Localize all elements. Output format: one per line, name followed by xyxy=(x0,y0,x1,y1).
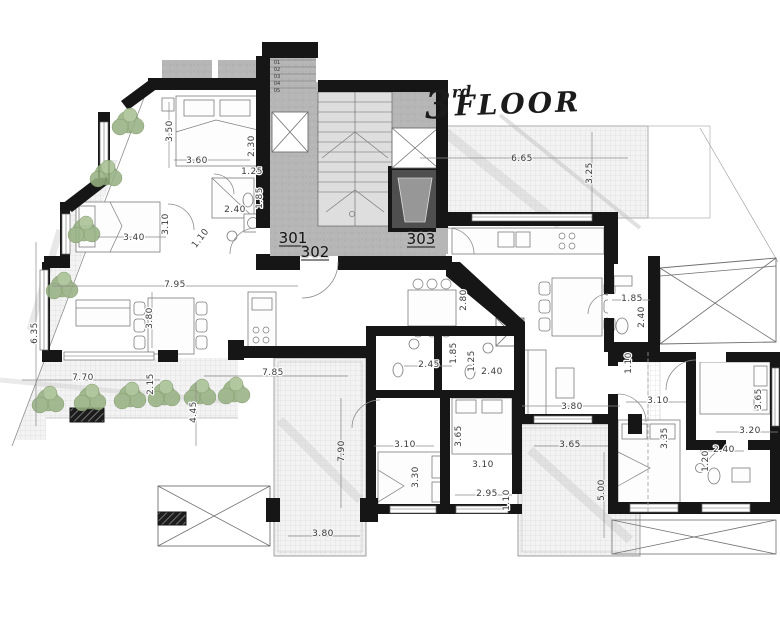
stair-step-numbers: 01 02 03 04 05 xyxy=(274,60,280,94)
elevator xyxy=(390,168,440,230)
dim-label: 7.85 xyxy=(262,368,284,378)
dim-label: 3.10 xyxy=(394,440,416,450)
dim-label: 2.95 xyxy=(476,489,498,499)
dim-label: 2.15 xyxy=(146,373,156,395)
dim-label: 1.85 xyxy=(255,187,265,209)
floor-title: 3 rd FLOOR xyxy=(424,77,582,127)
dim-label: 2.30 xyxy=(247,135,257,157)
dim-label: 1.10 xyxy=(502,489,512,511)
dim-label: 3.65 xyxy=(754,388,764,410)
dim-label: 1.10 xyxy=(190,227,211,250)
dim-label: 3.40 xyxy=(123,233,145,243)
dim-label: 3.80 xyxy=(561,402,583,412)
dim-label: 3.80 xyxy=(312,529,334,539)
dim-label: 5.00 xyxy=(597,479,607,501)
dim-label: 2.40 xyxy=(481,367,503,377)
dim-label: 7.95 xyxy=(164,280,186,290)
unit-label-302: 302 xyxy=(301,243,330,261)
dim-label: 3.25 xyxy=(585,162,595,184)
step-number: 02 xyxy=(274,67,280,73)
dim-label: 3.30 xyxy=(411,466,421,488)
dim-label: 3.10 xyxy=(647,396,669,406)
step-number: 05 xyxy=(274,88,280,94)
dim-label: 1.20 xyxy=(701,450,711,472)
dim-label: 3.80 xyxy=(145,307,155,329)
dim-label: 2.40 xyxy=(713,445,735,455)
staircase xyxy=(318,92,392,226)
dim-label: 7.70 xyxy=(72,373,94,383)
dim-label: 2.80 xyxy=(459,289,469,311)
floor-title-word: FLOOR xyxy=(453,85,582,122)
floor-title-number: 3 xyxy=(424,82,452,128)
dim-label: 1.25 xyxy=(241,167,263,177)
dim-label: 6.65 xyxy=(511,154,533,164)
unit-label-303: 303 xyxy=(407,230,436,248)
dim-label: 3.60 xyxy=(186,156,208,166)
dim-label: 6.35 xyxy=(30,322,40,344)
floor-plan-canvas: 3.50 3.60 1.25 2.30 2.40 1.85 3.40 3.10 … xyxy=(0,0,780,640)
dim-label: 4.45 xyxy=(189,401,199,423)
step-number: 01 xyxy=(274,60,280,66)
dim-label: 1.85 xyxy=(621,294,643,304)
dim-label: 3.10 xyxy=(472,460,494,470)
dim-label: 3.65 xyxy=(559,440,581,450)
step-number: 04 xyxy=(274,81,280,87)
dim-label: 1.10 xyxy=(624,352,634,374)
terrace-center xyxy=(274,358,366,556)
dim-label: 3.20 xyxy=(739,426,761,436)
dim-label: 2.40 xyxy=(224,205,246,215)
dim-label: 2.45 xyxy=(418,360,440,370)
dim-label: 2.40 xyxy=(637,306,647,328)
dim-label: 3.10 xyxy=(161,213,171,235)
step-number: 03 xyxy=(274,74,280,80)
dim-label: 7.90 xyxy=(337,440,347,462)
dim-label: 3.50 xyxy=(165,120,175,142)
dim-label: 3.35 xyxy=(660,427,670,449)
dim-label: 1.85 xyxy=(449,342,459,364)
dim-label: 1.25 xyxy=(467,350,477,372)
dim-label: 3.65 xyxy=(454,425,464,447)
